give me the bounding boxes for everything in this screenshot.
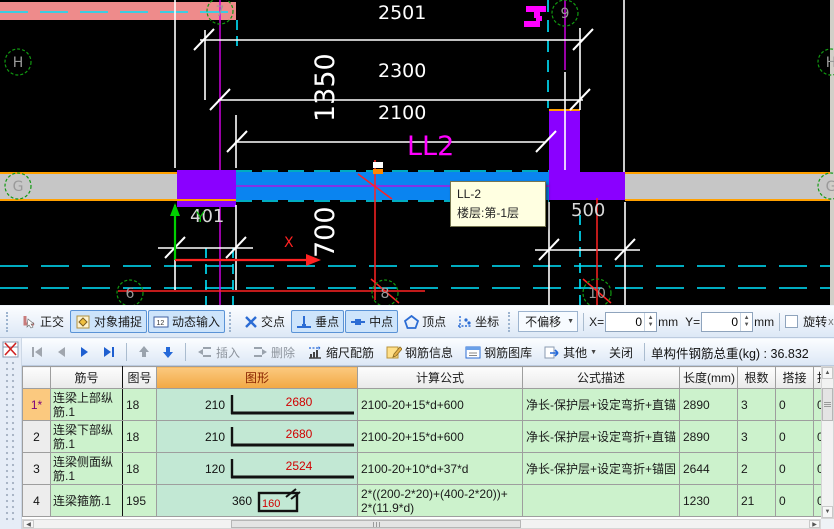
dynamic-input-icon: 12 <box>153 314 169 330</box>
scale-rebar-button[interactable]: 缩尺配筋 <box>302 341 379 364</box>
dim-700: 700 <box>310 206 341 258</box>
first-row-button[interactable] <box>26 341 48 363</box>
last-row-button[interactable] <box>98 341 120 363</box>
other-menu-label: 其他 <box>563 344 587 361</box>
stepper-arrows-icon[interactable]: ▲▼ <box>644 313 656 331</box>
stepper-arrows-icon[interactable]: ▲▼ <box>740 313 752 331</box>
rebar-shape-icon: 2524 <box>229 456 354 482</box>
object-snap-label: 对象捕捉 <box>94 313 142 330</box>
vertex-label: 顶点 <box>422 313 446 330</box>
header-formula[interactable]: 计算公式 <box>358 367 523 389</box>
previous-record-icon <box>53 344 69 360</box>
cad-viewport[interactable]: 2501 2300 2100 1350 700 401 500 LL2 H G <box>0 0 834 305</box>
table-row[interactable]: 2 连梁下部纵筋.1 18 210 2680 2100- <box>23 421 822 453</box>
dynamic-input-button[interactable]: 12 动态输入 <box>148 310 225 333</box>
ucs-x-label: X <box>284 235 294 251</box>
panel-icon[interactable] <box>2 341 19 358</box>
dynamic-input-label: 动态输入 <box>172 313 220 330</box>
scroll-up-icon[interactable]: ▲ <box>822 367 833 379</box>
svg-text:G: G <box>13 179 24 195</box>
midpoint-snap-button[interactable]: 中点 <box>345 310 398 333</box>
cell-formula[interactable]: 2100-20+10*d+37*d <box>358 453 523 485</box>
header-lap[interactable]: 搭接 <box>776 367 814 389</box>
cell-count[interactable]: 21 <box>738 485 776 517</box>
chevron-down-icon: ▼ <box>567 318 574 325</box>
cell-length[interactable]: 2644 <box>680 453 738 485</box>
cell-lap[interactable]: 0 <box>776 421 814 453</box>
vertical-scroll-thumb[interactable] <box>822 388 833 421</box>
intersection-icon <box>244 315 258 329</box>
rebar-library-icon <box>465 345 481 359</box>
row-number[interactable]: 2 <box>23 421 51 453</box>
cell-length[interactable]: 2890 <box>680 421 738 453</box>
svg-text:H: H <box>826 55 834 71</box>
header-rebar-id[interactable]: 筋号 <box>51 367 123 389</box>
svg-text:G: G <box>826 179 834 195</box>
toolbar-grip[interactable] <box>229 312 235 332</box>
stirrup-shape-icon: 160 <box>256 488 308 514</box>
ortho-label: 正交 <box>40 313 64 330</box>
cell-shape-no[interactable]: 18 <box>123 389 157 421</box>
rebar-library-button[interactable]: 钢筋图库 <box>460 341 537 364</box>
svg-text:2524: 2524 <box>286 459 313 473</box>
row-number[interactable]: 1* <box>23 389 51 421</box>
cell-length[interactable]: 2890 <box>680 389 738 421</box>
viewport-edge <box>830 0 834 305</box>
move-up-button[interactable] <box>133 341 155 363</box>
separator <box>779 313 780 331</box>
header-count[interactable]: 根数 <box>738 367 776 389</box>
cell-formula[interactable]: 2100-20+15*d+600 <box>358 421 523 453</box>
insert-row-button[interactable]: 插入 <box>192 341 245 364</box>
toolbar-grip[interactable] <box>508 312 514 332</box>
vertical-scrollbar[interactable]: ▲ ▼ <box>821 366 834 519</box>
row-number[interactable]: 3 <box>23 453 51 485</box>
cell-rebar-name[interactable]: 连梁箍筋.1 <box>51 485 123 517</box>
next-row-button[interactable] <box>74 341 96 363</box>
beam-label-ll2[interactable]: LL2 <box>407 131 454 162</box>
object-snap-icon <box>75 314 91 330</box>
cell-shape-no[interactable]: 18 <box>123 453 157 485</box>
svg-text:6: 6 <box>126 286 135 302</box>
svg-text:10: 10 <box>588 286 606 302</box>
scroll-left-icon[interactable]: ◀ <box>23 520 34 528</box>
coordinate-label: 坐标 <box>475 313 499 330</box>
scale-rebar-icon <box>307 345 323 359</box>
chevron-down-icon: ▼ <box>590 349 597 356</box>
midpoint-icon <box>350 315 366 329</box>
previous-row-button[interactable] <box>50 341 72 363</box>
cell-rebar-name[interactable]: 连梁下部纵筋.1 <box>51 421 123 453</box>
rebar-info-icon <box>386 345 402 359</box>
other-menu-button[interactable]: 其他 ▼ <box>539 341 602 364</box>
perpendicular-label: 垂点 <box>315 313 339 330</box>
edit-toolbar: 插入 删除 缩尺配筋 钢筋信息 钢筋图库 其他 ▼ 关闭 单构件钢筋总重(kg)… <box>22 338 834 366</box>
ucs-y-label: Y <box>195 210 205 226</box>
y-coordinate-input[interactable] <box>702 313 740 331</box>
perpendicular-snap-button[interactable]: 垂点 <box>291 310 344 333</box>
x-coordinate-input[interactable] <box>606 313 644 331</box>
arrow-up-icon <box>136 344 152 360</box>
offset-mode-value: 不偏移 <box>525 313 561 330</box>
rotate-label: 旋转 <box>803 313 827 330</box>
header-length[interactable]: 长度(mm) <box>680 367 738 389</box>
element-tooltip: LL-2 楼层:第-1层 <box>450 181 546 227</box>
cell-count[interactable]: 3 <box>738 421 776 453</box>
svg-text:9: 9 <box>561 6 570 22</box>
intersection-snap-button[interactable]: 交点 <box>239 310 290 333</box>
cell-shape-no[interactable]: 195 <box>123 485 157 517</box>
move-down-button[interactable] <box>157 341 179 363</box>
tooltip-floor: 楼层:第-1层 <box>457 204 539 223</box>
scale-rebar-label: 缩尺配筋 <box>326 344 374 361</box>
coordinate-icon <box>457 315 472 329</box>
close-button[interactable]: 关闭 <box>604 341 638 364</box>
header-corner <box>23 367 51 389</box>
y-coordinate-stepper[interactable]: ▲▼ <box>701 312 753 332</box>
cell-lap[interactable]: 0 <box>776 453 814 485</box>
svg-text:12: 12 <box>157 320 165 327</box>
table-row[interactable]: 1* 连梁上部纵筋.1 18 210 2680 2100 <box>23 389 822 421</box>
ortho-icon <box>21 314 37 330</box>
ortho-button[interactable]: 正交 <box>16 310 69 333</box>
rebar-library-label: 钢筋图库 <box>484 344 532 361</box>
intersection-label: 交点 <box>261 313 285 330</box>
delete-label: 删除 <box>271 344 295 361</box>
separator <box>583 313 584 331</box>
cell-shape[interactable]: 210 2680 <box>157 389 358 421</box>
object-snap-button[interactable]: 对象捕捉 <box>70 310 147 333</box>
cad-canvas[interactable]: 2501 2300 2100 1350 700 401 500 LL2 H G <box>0 0 834 305</box>
cell-rebar-name[interactable]: 连梁侧面纵筋.1 <box>51 453 123 485</box>
separator <box>185 343 186 361</box>
x-coordinate-stepper[interactable]: ▲▼ <box>605 312 657 332</box>
svg-text:7: 7 <box>216 4 225 20</box>
toolbar-overflow-icon[interactable]: x <box>828 316 834 328</box>
x-coordinate-label: X= <box>589 315 604 329</box>
last-record-icon <box>101 344 117 360</box>
cell-shape[interactable]: 360 160 <box>157 485 358 517</box>
panel-grip-dots[interactable] <box>4 360 16 524</box>
dim-2300: 2300 <box>378 60 426 82</box>
close-label: 关闭 <box>609 344 633 361</box>
shape-left-value: 210 <box>205 430 225 444</box>
first-record-icon <box>29 344 45 360</box>
next-record-icon <box>77 344 93 360</box>
cell-count[interactable]: 2 <box>738 453 776 485</box>
cell-formula-desc[interactable] <box>523 485 680 517</box>
svg-text:H: H <box>13 55 24 71</box>
cell-shape-no[interactable]: 18 <box>123 421 157 453</box>
perpendicular-icon <box>296 315 312 329</box>
column-left[interactable] <box>177 170 236 207</box>
cell-formula[interactable]: 2*((200-2*20)+(400-2*20))+2*(11.9*d) <box>358 485 523 517</box>
y-unit-label: mm <box>754 315 774 329</box>
table-header-row: 筋号 图号 图形 计算公式 公式描述 长度(mm) 根数 搭接 损 <box>23 367 822 389</box>
wall-right[interactable] <box>625 173 834 200</box>
scrollbar-corner <box>821 519 834 529</box>
row-number[interactable]: 4 <box>23 485 51 517</box>
shape-left-value: 210 <box>205 398 225 412</box>
horizontal-scrollbar[interactable]: ◀ ▶ <box>22 519 821 529</box>
dim-2100: 2100 <box>378 102 426 124</box>
offset-mode-select[interactable]: 不偏移 ▼ <box>518 311 578 332</box>
delete-row-button[interactable]: 删除 <box>247 341 300 364</box>
rotate-checkbox[interactable] <box>785 315 798 328</box>
snap-toolbar: 正交 对象捕捉 12 动态输入 交点 垂点 中点 顶点 坐标 <box>0 305 834 338</box>
cell-formula-desc[interactable]: 净长-保护层+设定弯折+直锚 <box>523 389 680 421</box>
toolbar-grip[interactable] <box>6 312 12 332</box>
cell-formula-desc[interactable]: 净长-保护层+设定弯折+锚固 <box>523 453 680 485</box>
cell-rebar-name[interactable]: 连梁上部纵筋.1 <box>51 389 123 421</box>
cell-shape[interactable]: 210 2680 <box>157 421 358 453</box>
total-rebar-weight: 单构件钢筋总重(kg) : 36.832 <box>651 343 809 362</box>
y-coordinate-label: Y= <box>685 315 700 329</box>
header-shape-no[interactable]: 图号 <box>123 367 157 389</box>
scroll-down-icon[interactable]: ▼ <box>822 506 833 518</box>
tooltip-element-name: LL-2 <box>457 185 539 204</box>
rebar-editor-window: 2501 2300 2100 1350 700 401 500 LL2 H G <box>0 0 834 529</box>
cell-formula[interactable]: 2100-20+15*d+600 <box>358 389 523 421</box>
other-menu-icon <box>544 345 560 359</box>
rebar-shape-icon: 2680 <box>229 392 354 418</box>
arrow-down-icon <box>160 344 176 360</box>
midpoint-label: 中点 <box>369 313 393 330</box>
svg-text:2680: 2680 <box>286 427 313 441</box>
cell-lap[interactable]: 0 <box>776 389 814 421</box>
header-shape[interactable]: 图形 <box>157 367 358 389</box>
vertex-icon <box>404 315 419 329</box>
rebar-shape-icon: 2680 <box>229 424 354 450</box>
dim-500: 500 <box>571 200 605 221</box>
dim-2501: 2501 <box>378 2 426 24</box>
svg-text:8: 8 <box>381 286 390 302</box>
rebar-info-button[interactable]: 钢筋信息 <box>381 341 458 364</box>
cell-formula-desc[interactable]: 净长-保护层+设定弯折+直锚 <box>523 421 680 453</box>
docked-panel-strip <box>0 338 22 529</box>
x-unit-label: mm <box>658 315 678 329</box>
coordinate-snap-button[interactable]: 坐标 <box>452 310 504 333</box>
cell-count[interactable]: 3 <box>738 389 776 421</box>
table-row[interactable]: 3 连梁侧面纵筋.1 18 120 2524 2100- <box>23 453 822 485</box>
insert-label: 插入 <box>216 344 240 361</box>
cell-lap[interactable]: 0 <box>776 485 814 517</box>
dim-1350: 1350 <box>310 53 341 122</box>
svg-text:160: 160 <box>262 498 280 510</box>
separator <box>644 343 645 361</box>
insert-icon <box>197 345 213 359</box>
insertion-marker <box>373 162 383 174</box>
header-formula-desc[interactable]: 公式描述 <box>523 367 680 389</box>
wall-highlight-band <box>0 2 236 20</box>
rebar-schedule-table: 筋号 图号 图形 计算公式 公式描述 长度(mm) 根数 搭接 损 1* 连梁上… <box>22 366 821 519</box>
cell-length[interactable]: 1230 <box>680 485 738 517</box>
vertex-snap-button[interactable]: 顶点 <box>399 310 451 333</box>
delete-icon <box>252 345 268 359</box>
horizontal-scroll-thumb[interactable] <box>231 520 521 528</box>
cell-shape[interactable]: 120 2524 <box>157 453 358 485</box>
separator <box>126 343 127 361</box>
table-row[interactable]: 4 连梁箍筋.1 195 360 160 <box>23 485 822 517</box>
scroll-right-icon[interactable]: ▶ <box>809 520 820 528</box>
rebar-info-label: 钢筋信息 <box>405 344 453 361</box>
svg-text:2680: 2680 <box>286 395 313 409</box>
shape-left-value: 360 <box>232 494 252 508</box>
shape-left-value: 120 <box>205 462 225 476</box>
